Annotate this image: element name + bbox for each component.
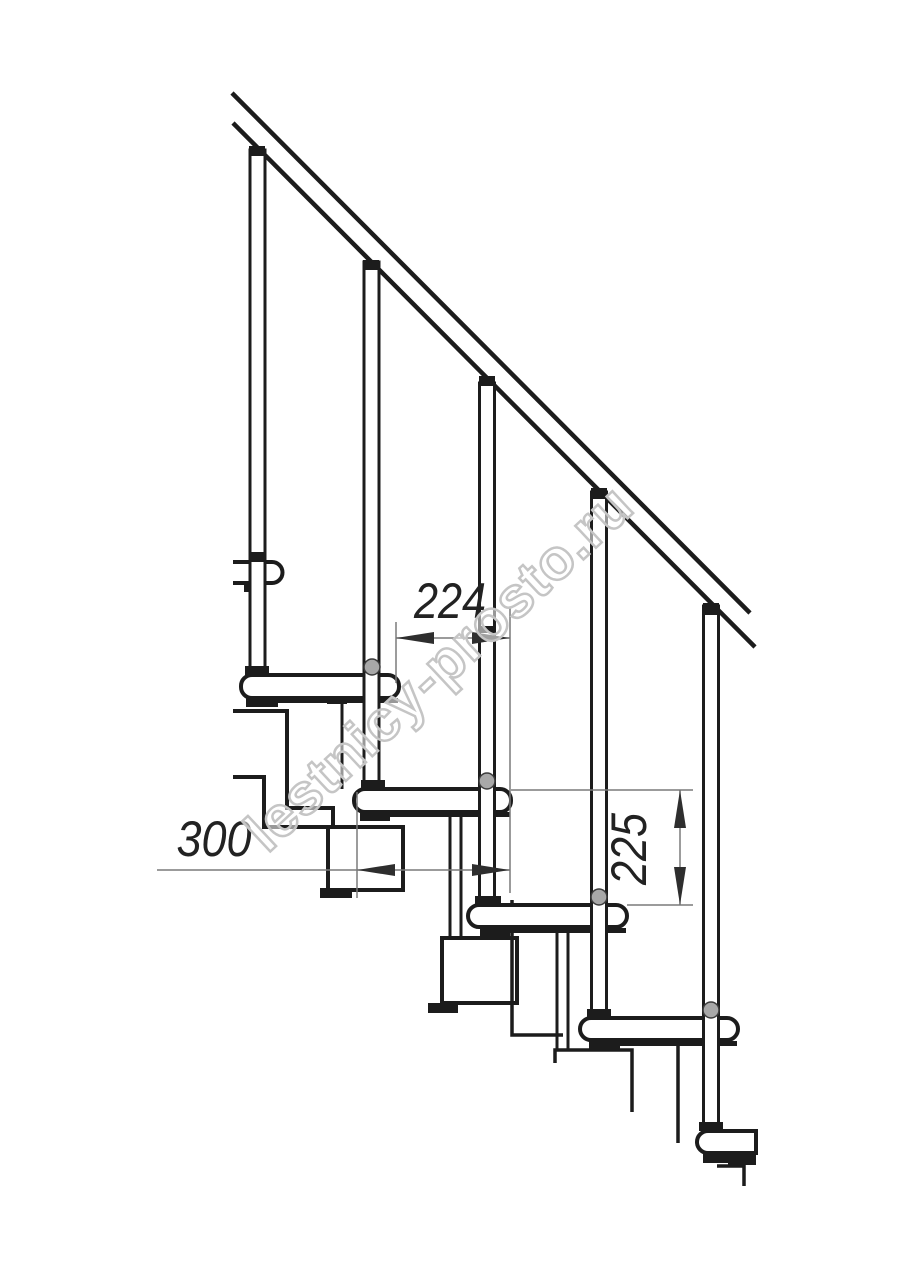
technical-drawing-page: 224 300 225 lestnicy-prosto.ru: [0, 0, 914, 1280]
rail-cap-1: [249, 146, 265, 156]
module-2-foot: [320, 888, 352, 898]
dim-225-arrow-up: [674, 790, 686, 828]
dim-225-label: 225: [601, 813, 657, 886]
stringer-module-box-2: [328, 827, 403, 890]
rail-cap-2: [363, 260, 379, 270]
baluster-1: [250, 150, 265, 675]
baluster-5: [704, 606, 719, 1131]
module-3-foot: [428, 1003, 458, 1013]
tread-5-partial: [697, 1131, 756, 1153]
dim-225-arrow-down: [674, 867, 686, 905]
tread-1-foot: [246, 697, 278, 707]
cap-baluster1-tread0: [249, 552, 266, 562]
cap-baluster5-tread5: [699, 1122, 723, 1131]
tread-5-foot: [703, 1153, 728, 1163]
tread-3-foot: [480, 927, 510, 937]
cap-baluster2-tread2: [361, 780, 385, 789]
tread-3-strip: [508, 928, 626, 933]
stringer-module-box-3: [442, 938, 517, 1003]
collar-baluster2: [364, 659, 380, 675]
baluster-4: [592, 492, 607, 1018]
collar-baluster5: [703, 1002, 719, 1018]
tread-1-block: [327, 696, 347, 704]
cap-baluster1-tread1: [245, 666, 269, 675]
collar-baluster4: [591, 889, 607, 905]
collar-baluster3: [479, 773, 495, 789]
stringer-step-outline-5: [717, 1166, 744, 1186]
stringer-step-outline-4: [555, 1050, 632, 1112]
rail-cap-5: [703, 603, 719, 615]
cap-baluster4-tread4: [587, 1009, 611, 1018]
cap-baluster3-tread3: [475, 896, 501, 905]
tread-2-foot: [360, 811, 390, 821]
rail-cap-3: [479, 376, 495, 386]
staircase-drawing: 224 300 225 lestnicy-prosto.ru: [0, 0, 914, 1280]
tread-5-block: [728, 1155, 756, 1165]
tread-4-foot: [589, 1040, 620, 1049]
